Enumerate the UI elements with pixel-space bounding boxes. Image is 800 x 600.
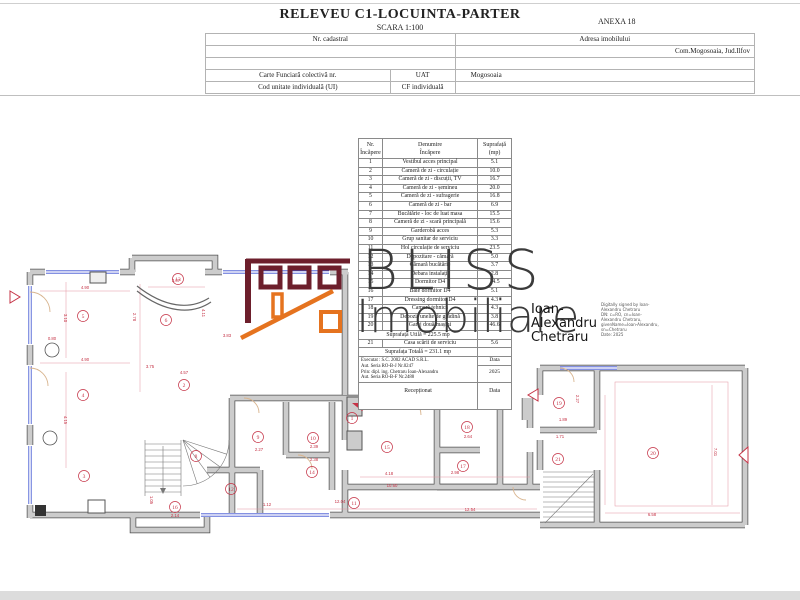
table-row: 13Cămară bucătărie3.7 bbox=[359, 262, 512, 271]
svg-text:7.01: 7.01 bbox=[713, 448, 718, 457]
svg-text:2.64: 2.64 bbox=[464, 434, 473, 439]
table-row: 21Casa scării de serviciu5.6 bbox=[359, 339, 512, 348]
svg-text:16: 16 bbox=[172, 505, 178, 511]
table-row: 9Garderobă acces5.3 bbox=[359, 227, 512, 236]
table-row: 3Cameră de zi - discuții, TV16.7 bbox=[359, 176, 512, 185]
svg-text:3: 3 bbox=[83, 474, 86, 480]
svg-text:4: 4 bbox=[82, 393, 85, 399]
col-header-denumire: DenumireÎncăpere bbox=[382, 139, 477, 159]
table-row: 4Cameră de zi - șemineu20.0 bbox=[359, 184, 512, 193]
svg-text:0.80: 0.80 bbox=[48, 336, 57, 341]
svg-text:2.27: 2.27 bbox=[575, 395, 580, 404]
col-header-suprafata: Suprafață(mp) bbox=[478, 139, 512, 159]
svg-text:4.90: 4.90 bbox=[81, 285, 90, 290]
svg-text:4.90: 4.90 bbox=[81, 357, 90, 362]
svg-text:3.10: 3.10 bbox=[63, 314, 68, 323]
svg-text:4.15: 4.15 bbox=[63, 416, 68, 425]
svg-text:1: 1 bbox=[351, 416, 354, 422]
svg-text:1.89: 1.89 bbox=[559, 417, 568, 422]
receptionat-data-label: Data bbox=[478, 382, 512, 409]
svg-text:5: 5 bbox=[82, 314, 85, 320]
table-row: 19Depozit unelte de grădină3.8 bbox=[359, 313, 512, 322]
svg-text:3.75: 3.75 bbox=[146, 364, 155, 369]
table-row: 6Cameră de zi - bar6.9 bbox=[359, 201, 512, 210]
svg-text:18: 18 bbox=[464, 425, 470, 431]
svg-text:1.71: 1.71 bbox=[556, 434, 565, 439]
table-row: 8Cameră de zi - scară principală15.6 bbox=[359, 219, 512, 228]
receptionat-label: Recepționat bbox=[359, 382, 478, 409]
svg-text:17: 17 bbox=[460, 464, 466, 470]
data-cell: Data 2025 bbox=[478, 357, 512, 382]
svg-text:3.83: 3.83 bbox=[223, 333, 232, 338]
svg-text:12.04: 12.04 bbox=[335, 499, 346, 504]
svg-text:6.58: 6.58 bbox=[648, 512, 657, 517]
svg-text:20: 20 bbox=[650, 451, 656, 457]
table-row: 5Cameră de zi - sufragerie16.8 bbox=[359, 193, 512, 202]
svg-text:2.14: 2.14 bbox=[171, 513, 180, 518]
table-row: 17Dressing dormitor D44.3 bbox=[359, 296, 512, 305]
suprafata-totala: Suprafața Totală = 231.1 mp bbox=[359, 348, 478, 357]
svg-text:10: 10 bbox=[310, 436, 316, 442]
svg-text:14: 14 bbox=[309, 470, 315, 476]
table-row: 16Baie dormitor D45.1 bbox=[359, 287, 512, 296]
suprafata-utila: Suprafața Utilă = 225.5 mp bbox=[359, 330, 478, 339]
svg-text:4.11: 4.11 bbox=[201, 309, 206, 318]
svg-text:2.27: 2.27 bbox=[255, 447, 264, 452]
table-row: 7Bucătărie - loc de luat masa15.5 bbox=[359, 210, 512, 219]
digital-signature-text: Digitally signed by Ioan-Alexandru Chetr… bbox=[601, 302, 663, 337]
svg-text:15: 15 bbox=[384, 445, 390, 451]
svg-text:4.57: 4.57 bbox=[180, 370, 189, 375]
svg-text:2: 2 bbox=[183, 383, 186, 389]
table-row: 1Vestibul acces principal5.1 bbox=[359, 159, 512, 168]
svg-text:12.54: 12.54 bbox=[465, 507, 476, 512]
svg-text:6: 6 bbox=[165, 318, 168, 324]
table-row: 15Dormitor D414.5 bbox=[359, 279, 512, 288]
svg-text:19: 19 bbox=[556, 401, 562, 407]
svg-text:12: 12 bbox=[228, 487, 234, 493]
svg-text:9: 9 bbox=[257, 435, 260, 441]
signature-name: Ioan-AlexandruChetraru bbox=[531, 303, 597, 345]
table-row: 12Depozitare - cămară5.0 bbox=[359, 253, 512, 262]
table-row: 10Grup sanitar de serviciu3.3 bbox=[359, 236, 512, 245]
svg-text:2.38: 2.38 bbox=[310, 457, 319, 462]
svg-text:2.78: 2.78 bbox=[132, 313, 137, 322]
document-page: RELEVEU C1-LOCUINTA-PARTER SCARA 1:100 A… bbox=[0, 0, 800, 600]
svg-text:10.60: 10.60 bbox=[387, 483, 398, 488]
svg-text:2.39: 2.39 bbox=[310, 444, 319, 449]
svg-text:3.07: 3.07 bbox=[172, 278, 181, 283]
svg-text:4.18: 4.18 bbox=[385, 471, 394, 476]
table-row: 20Garaj două mașini46.6 bbox=[359, 322, 512, 331]
table-row: 2Cameră de zi - circulație10.0 bbox=[359, 167, 512, 176]
table-row: 18Cameră tehnică4.3 bbox=[359, 305, 512, 314]
svg-text:1.05: 1.05 bbox=[149, 496, 154, 505]
svg-text:21: 21 bbox=[555, 457, 561, 463]
table-row: 14Debara instalații2.8 bbox=[359, 270, 512, 279]
svg-text:8: 8 bbox=[195, 454, 198, 460]
table-row: 11Hol circulație de serviciu23.5 bbox=[359, 244, 512, 253]
room-area-table: Nr.Încăpere DenumireÎncăpere Suprafață(m… bbox=[358, 138, 512, 410]
col-header-nr: Nr.Încăpere bbox=[359, 139, 383, 159]
svg-text:1.12: 1.12 bbox=[263, 502, 272, 507]
svg-text:2.98: 2.98 bbox=[451, 470, 460, 475]
svg-text:11: 11 bbox=[351, 501, 357, 507]
executat-block: Executat : S.C. 2002 ACAD S.R.L.Aut. Ser… bbox=[359, 357, 478, 382]
